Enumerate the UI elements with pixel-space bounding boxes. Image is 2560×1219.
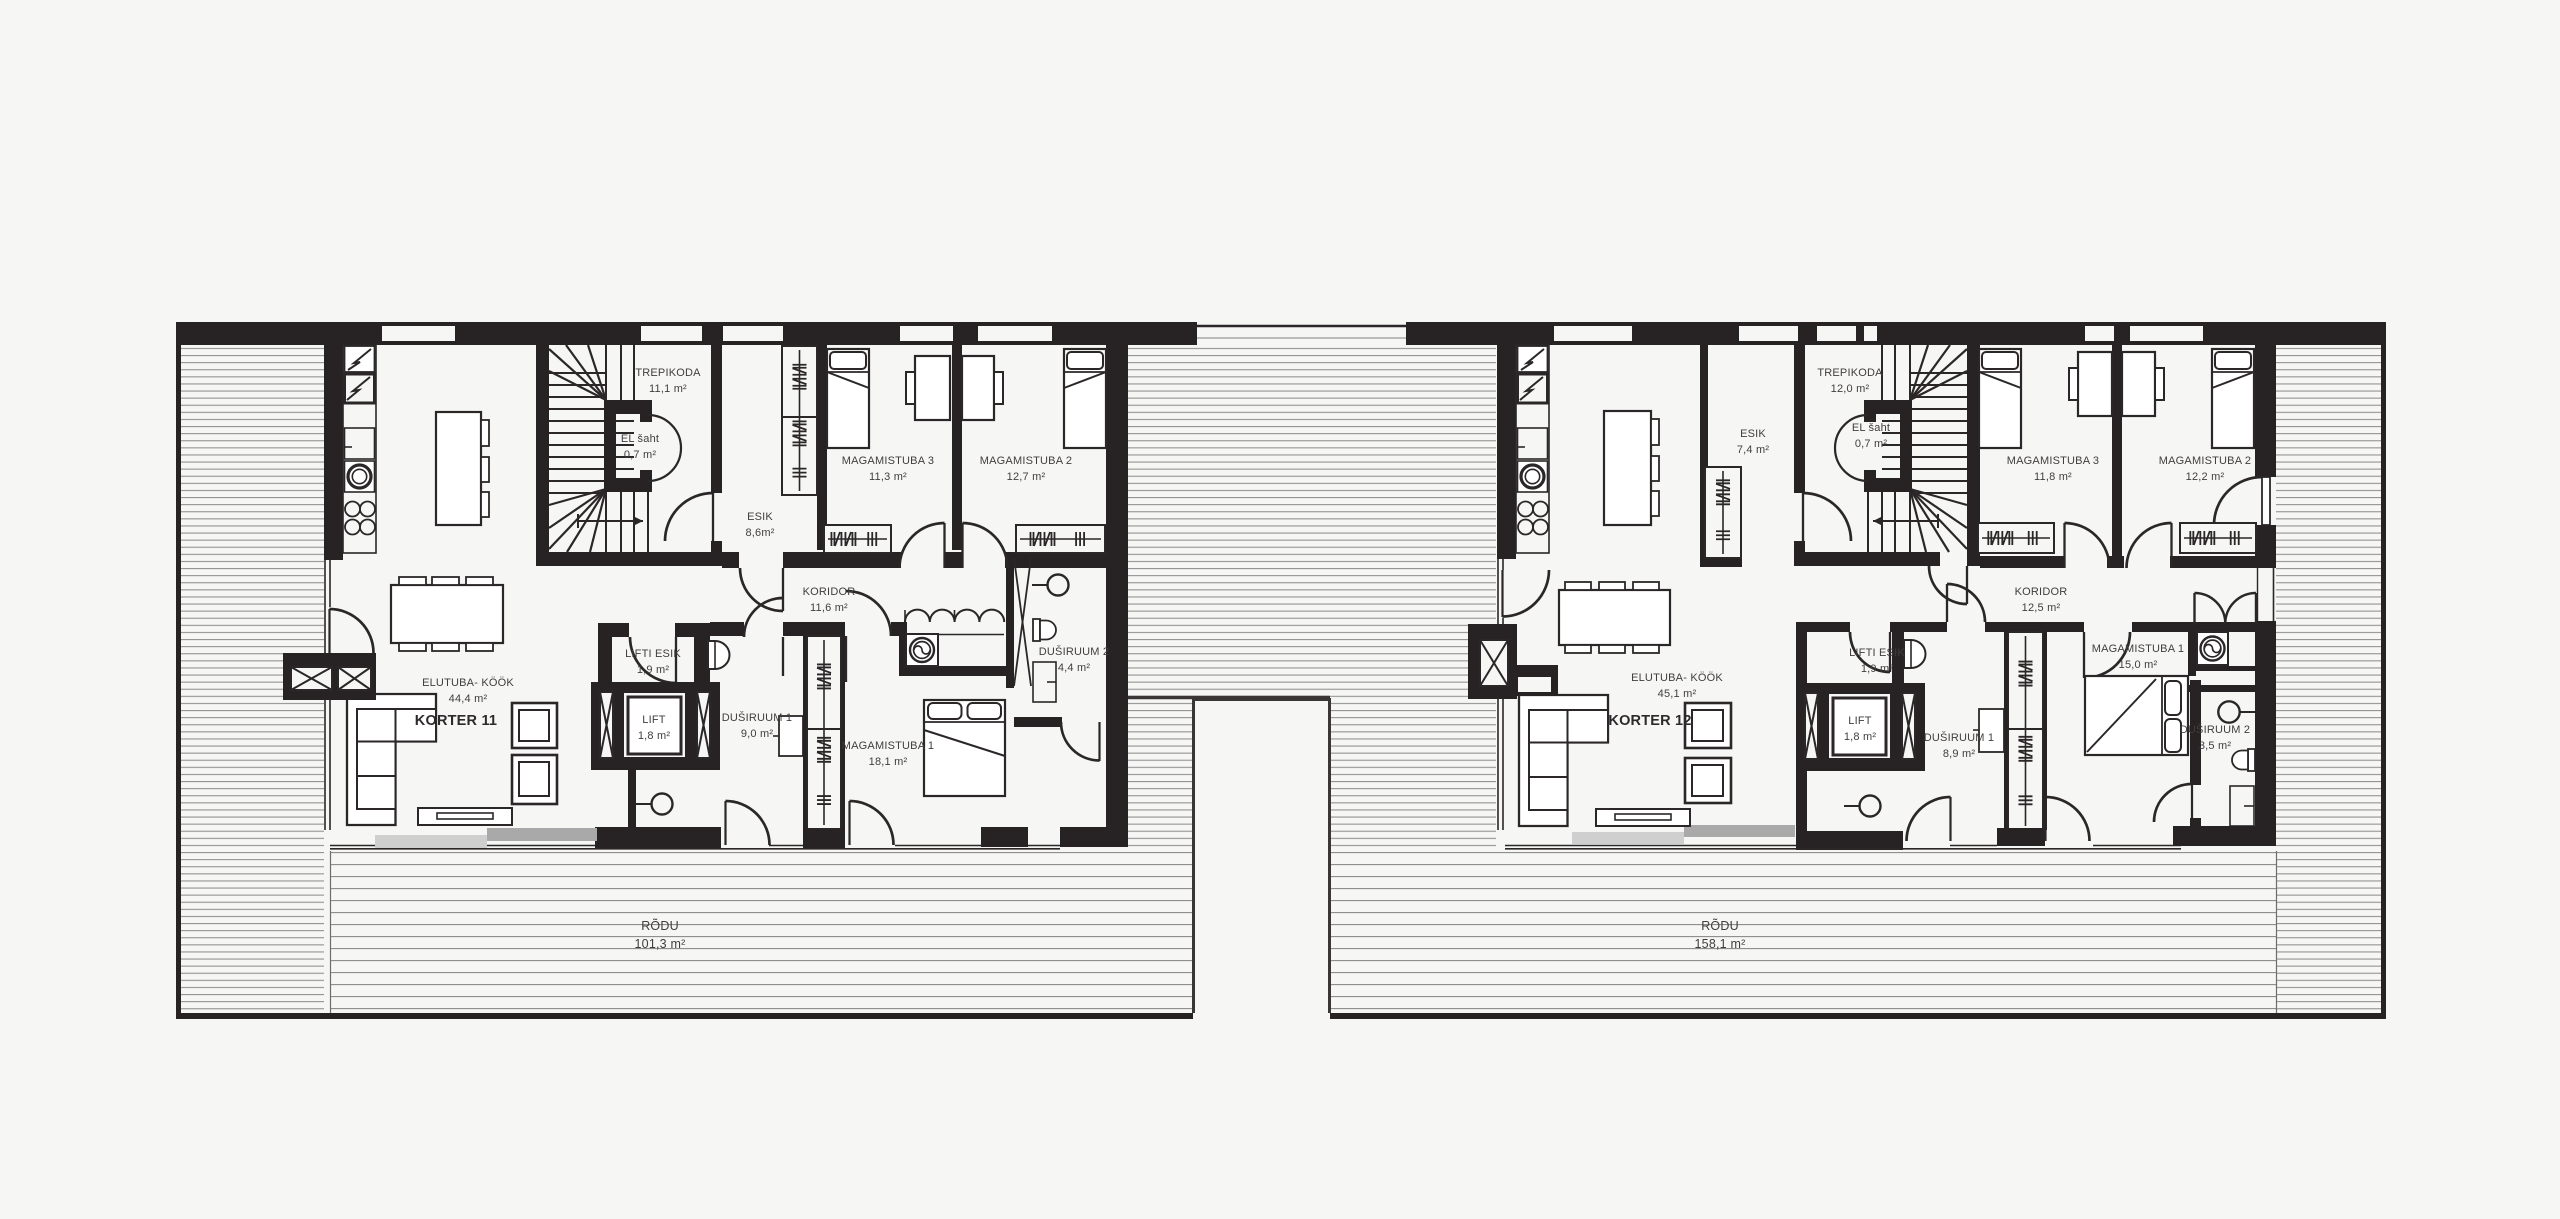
svg-text:RÕDU: RÕDU (1701, 918, 1739, 933)
svg-text:11,1 m²: 11,1 m² (649, 383, 687, 395)
svg-text:ESIK: ESIK (747, 511, 773, 523)
svg-text:KORTER 12: KORTER 12 (1608, 713, 1691, 729)
svg-text:12,7 m²: 12,7 m² (1007, 471, 1046, 483)
svg-text:1,8 m²: 1,8 m² (1844, 731, 1877, 743)
svg-text:MAGAMISTUBA 2: MAGAMISTUBA 2 (2159, 455, 2251, 467)
svg-text:DUŠIRUUM 2: DUŠIRUUM 2 (2180, 723, 2250, 736)
svg-text:KORIDOR: KORIDOR (2015, 586, 2068, 598)
svg-text:101,3 m²: 101,3 m² (635, 937, 686, 951)
svg-text:1,8 m²: 1,8 m² (638, 730, 671, 742)
svg-text:DUŠIRUUM 1: DUŠIRUUM 1 (722, 711, 792, 724)
svg-text:TREPIKODA: TREPIKODA (1817, 367, 1883, 379)
svg-text:7,4 m²: 7,4 m² (1737, 444, 1770, 456)
svg-text:TREPIKODA: TREPIKODA (635, 367, 701, 379)
svg-text:MAGAMISTUBA 1: MAGAMISTUBA 1 (2092, 643, 2184, 655)
svg-text:LIFT: LIFT (642, 714, 665, 726)
svg-text:LIFT: LIFT (1848, 715, 1871, 727)
svg-text:KORIDOR: KORIDOR (803, 586, 856, 598)
svg-text:11,8 m²: 11,8 m² (2034, 471, 2072, 483)
svg-text:15,0 m²: 15,0 m² (2119, 659, 2158, 671)
svg-text:MAGAMISTUBA 1: MAGAMISTUBA 1 (842, 740, 934, 752)
svg-text:0,7 m²: 0,7 m² (624, 449, 657, 461)
svg-text:LIFTI ESIK: LIFTI ESIK (625, 648, 681, 660)
svg-text:158,1 m²: 158,1 m² (1695, 937, 1746, 951)
svg-text:9,0 m²: 9,0 m² (741, 728, 774, 740)
svg-text:12,0 m²: 12,0 m² (1831, 383, 1870, 395)
svg-text:DUŠIRUUM 2: DUŠIRUUM 2 (1039, 645, 1109, 658)
svg-text:ELUTUBA- KÖÖK: ELUTUBA- KÖÖK (422, 677, 514, 689)
svg-text:LIFTI ESIK: LIFTI ESIK (1849, 647, 1905, 659)
svg-text:ESIK: ESIK (1740, 428, 1766, 440)
svg-text:11,6 m²: 11,6 m² (810, 602, 848, 614)
svg-text:MAGAMISTUBA 2: MAGAMISTUBA 2 (980, 455, 1072, 467)
svg-text:12,2 m²: 12,2 m² (2186, 471, 2225, 483)
svg-text:18,1 m²: 18,1 m² (869, 756, 908, 768)
svg-text:8,6m²: 8,6m² (745, 527, 774, 539)
svg-text:0,7 m²: 0,7 m² (1855, 438, 1888, 450)
svg-text:4,4 m²: 4,4 m² (1058, 662, 1091, 674)
svg-text:11,3 m²: 11,3 m² (869, 471, 907, 483)
svg-text:RÕDU: RÕDU (641, 918, 679, 933)
svg-text:44,4 m²: 44,4 m² (449, 693, 488, 705)
svg-text:1,9 m²: 1,9 m² (1861, 663, 1894, 675)
svg-text:3,5 m²: 3,5 m² (2199, 740, 2232, 752)
svg-text:8,9 m²: 8,9 m² (1943, 748, 1976, 760)
svg-text:EL šaht: EL šaht (1852, 422, 1890, 434)
svg-text:DUŠIRUUM 1: DUŠIRUUM 1 (1924, 731, 1994, 744)
svg-text:EL šaht: EL šaht (621, 433, 659, 445)
svg-text:MAGAMISTUBA 3: MAGAMISTUBA 3 (2007, 455, 2099, 467)
svg-text:MAGAMISTUBA 3: MAGAMISTUBA 3 (842, 455, 934, 467)
svg-text:KORTER 11: KORTER 11 (415, 713, 497, 729)
svg-text:1,9 m²: 1,9 m² (637, 664, 670, 676)
svg-text:12,5 m²: 12,5 m² (2022, 602, 2061, 614)
svg-text:45,1 m²: 45,1 m² (1658, 688, 1697, 700)
svg-text:ELUTUBA- KÖÖK: ELUTUBA- KÖÖK (1631, 672, 1723, 684)
